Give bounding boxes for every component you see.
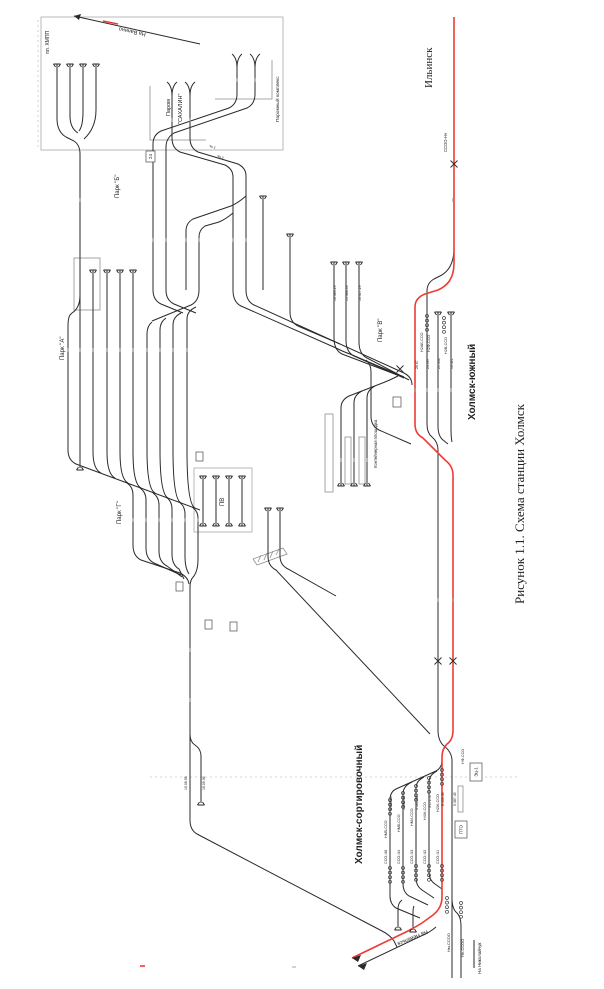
track	[438, 312, 448, 444]
track	[79, 64, 83, 131]
small-number-smudge	[145, 518, 146, 522]
station-track-diagram: Рисунок 1.1. Схема станции Холмск 24Эц-1…	[0, 0, 604, 989]
platform-rect	[359, 437, 365, 484]
track	[280, 556, 336, 596]
diagram-label: 16.417.29	[358, 285, 362, 301]
small-number-smudge	[146, 348, 147, 352]
small-number-smudge	[79, 198, 80, 202]
track	[185, 557, 189, 574]
ferry-berth-funnel	[190, 82, 195, 96]
diagram-label: Н2АБ-ССО	[420, 332, 424, 352]
diagram-label: ССО-Ч3	[410, 850, 414, 864]
diagram-label: 5.600.44	[402, 796, 406, 810]
label-box	[196, 452, 203, 461]
diagram-label: НМ5-ССО	[384, 820, 388, 838]
track	[334, 262, 400, 376]
diagram-label: ССО-Ч2	[423, 850, 427, 864]
small-number-smudge	[79, 348, 80, 352]
track	[147, 450, 155, 493]
box-label: Эц-1	[474, 767, 479, 777]
signal-icon	[460, 902, 463, 905]
ferry-berth-funnel	[255, 54, 260, 68]
small-number-smudge	[232, 238, 233, 242]
figure-caption: Рисунок 1.1. Схема станции Холмск	[512, 403, 527, 604]
track	[68, 295, 80, 450]
signal-icon	[446, 910, 449, 913]
track	[173, 313, 181, 450]
small-number-smudge	[158, 518, 159, 522]
small-number-smudge	[67, 348, 68, 352]
diagram-label: 2 пь	[217, 154, 225, 160]
diagram-label: НФ-ССО	[461, 749, 465, 764]
gray-structure	[258, 555, 261, 562]
signal-icon	[428, 878, 431, 881]
small-number-smudge	[254, 78, 255, 82]
box-label: 24	[148, 154, 153, 159]
track	[179, 502, 185, 557]
small-number-smudge	[414, 388, 415, 392]
small-number-smudge	[186, 348, 187, 352]
small-number-smudge	[184, 518, 185, 522]
small-number-smudge	[185, 238, 186, 242]
gray-structure	[253, 548, 287, 565]
diagram-label: 16.421	[450, 358, 454, 369]
track	[160, 318, 166, 450]
diagram-label: 3.172.47	[428, 794, 432, 808]
small-number-smudge	[92, 348, 93, 352]
track	[133, 452, 141, 488]
small-number-smudge	[189, 118, 190, 122]
label-box	[176, 582, 183, 591]
label-box	[393, 397, 401, 407]
diagram-label: ССОО-Нч	[443, 133, 448, 152]
small-number-smudge	[189, 648, 190, 652]
ferry-berth-funnel	[250, 54, 255, 68]
box-label: ПТО	[459, 824, 464, 834]
track	[190, 138, 246, 290]
signal-icon	[446, 901, 449, 904]
platform-rect	[345, 437, 351, 484]
track	[268, 556, 430, 734]
diagram-label: 4.481.42	[415, 796, 419, 810]
small-number-smudge	[340, 458, 341, 462]
yard-v-label: Парк "В"	[378, 318, 384, 342]
ferry-berth-funnel	[185, 82, 190, 96]
ferry-label-line1: Паром	[166, 99, 172, 116]
ferry-berth-funnel	[167, 82, 172, 96]
small-number-smudge	[197, 518, 198, 522]
small-number-smudge	[236, 78, 237, 82]
boundary-frame	[41, 17, 283, 150]
small-number-smudge	[450, 388, 451, 392]
track	[187, 307, 196, 450]
track	[70, 64, 78, 133]
diagram-label: Н2Ф-ССО	[427, 335, 431, 352]
track	[346, 262, 404, 378]
diagram-label: 15.488.33	[345, 285, 349, 301]
small-number-smudge	[172, 348, 173, 352]
ferry-berth-funnel	[237, 54, 242, 68]
small-number-smudge	[171, 118, 172, 122]
diagram-label: 16.08.98	[184, 776, 188, 790]
track	[173, 450, 181, 503]
small-number-smudge	[132, 348, 133, 352]
signal-icon	[460, 911, 463, 914]
khmpp-platform-label: пл. ХМПП	[45, 31, 51, 54]
signal-icon	[446, 906, 449, 909]
diagram-label: Нм-ССОО	[446, 933, 451, 952]
track	[127, 483, 133, 545]
diagram-label: 21.446	[437, 358, 441, 369]
small-number-smudge	[171, 518, 172, 522]
track	[147, 322, 152, 450]
track	[166, 497, 172, 554]
small-number-smudge	[353, 458, 354, 462]
track	[146, 548, 181, 575]
signal-icon	[443, 317, 446, 320]
track	[190, 586, 397, 947]
small-number-smudge	[132, 518, 133, 522]
diagram-label: 5.387.45	[453, 792, 457, 806]
ilinsk-label: Ильинск	[423, 47, 435, 88]
small-number-smudge	[106, 348, 107, 352]
pv-depot-label: ПВ	[220, 498, 226, 506]
diagram-label: ССО-Ч6	[384, 850, 388, 864]
track	[140, 488, 146, 548]
platform-rect	[74, 258, 100, 310]
platform-rect	[458, 786, 463, 812]
diagram-label: ССО-Ч1	[436, 850, 440, 864]
small-number-smudge	[198, 238, 199, 242]
track	[451, 312, 452, 442]
small-number-smudge	[437, 388, 438, 392]
platform-rect	[325, 414, 333, 492]
container-area-label: Контейнерная площадка	[373, 419, 378, 468]
track	[186, 196, 246, 290]
track	[190, 734, 201, 803]
diagram-label: НМ6-ССО	[397, 814, 401, 832]
vanino-direction-label: На Ванино	[118, 25, 146, 37]
ferry-label-line2: "САХАЛИН"	[178, 94, 184, 124]
track	[152, 290, 199, 321]
track	[359, 262, 409, 380]
kholmsk-sortirovochny-label: Холмск-сортировочный	[354, 745, 365, 864]
track	[107, 452, 115, 478]
diagram-label: Н4Ж-ССО	[423, 802, 427, 820]
diagram-label: Не-ССОО	[460, 939, 465, 957]
diagram-label: 16.09.36	[202, 776, 206, 790]
signal-icon	[460, 906, 463, 909]
signal-icon	[443, 330, 446, 333]
nevelsk-direction-label: На Невельск	[396, 928, 429, 946]
track	[427, 248, 454, 978]
signal-icon	[443, 326, 446, 329]
small-number-smudge	[452, 198, 453, 202]
track	[133, 545, 189, 584]
document-page: Рисунок 1.1. Схема станции Холмск 24Эц-1…	[0, 0, 604, 989]
track	[190, 560, 198, 586]
ferry-berth-funnel	[232, 54, 237, 68]
diagram-label: НМ4-ССО	[410, 808, 414, 826]
yard-b-label: Парк "Б"	[115, 175, 121, 198]
signal-icon	[446, 897, 449, 900]
track	[199, 213, 233, 290]
label-box	[230, 622, 237, 631]
small-number-smudge	[366, 458, 367, 462]
diagram-label: 26.67	[415, 360, 419, 369]
track	[84, 64, 96, 139]
track	[93, 452, 101, 473]
diagram-label: 8.458.38	[441, 792, 445, 806]
track	[452, 898, 461, 978]
diagram-label: 1 пь	[209, 144, 217, 150]
track	[172, 554, 184, 579]
small-number-smudge	[119, 348, 120, 352]
diagram-label: Н2В-ССО	[444, 337, 448, 354]
small-number-smudge	[152, 238, 153, 242]
track	[153, 290, 183, 313]
ferry-berth-funnel	[172, 82, 177, 96]
track	[192, 507, 198, 560]
track	[159, 551, 182, 577]
yard-a-label: Парк "А"	[60, 336, 66, 360]
diagram-label: Н2Ж-ССО	[436, 794, 440, 812]
gray-structure	[215, 60, 272, 99]
track	[160, 450, 168, 498]
ferry-complex-label: Паромный комплекс	[274, 76, 281, 122]
track	[57, 64, 80, 154]
small-number-smudge	[245, 238, 246, 242]
small-number-smudge	[437, 598, 438, 602]
kholmsk-yuzhny-label: Холмск-южный	[467, 344, 478, 420]
small-number-smudge	[426, 388, 427, 392]
track	[413, 906, 414, 930]
small-number-smudge	[452, 598, 453, 602]
track	[153, 493, 159, 551]
small-number-smudge	[165, 238, 166, 242]
signal-icon	[443, 321, 446, 324]
track	[429, 771, 442, 889]
yard-g-label: Парк "Г"	[117, 501, 123, 524]
track	[68, 450, 200, 510]
diagram-label: 6.040.63	[389, 796, 393, 810]
diagram-label: 23.397	[426, 358, 430, 369]
nikolaychuk-direction-label: На Николайчук	[476, 943, 482, 974]
small-number-smudge	[159, 348, 160, 352]
small-number-smudge	[189, 698, 190, 702]
diagram-label: 16.383.29	[333, 285, 337, 301]
track	[120, 452, 128, 483]
diagram-label: ССО-Ч4	[397, 850, 401, 864]
label-box	[205, 620, 212, 629]
track	[398, 900, 402, 928]
